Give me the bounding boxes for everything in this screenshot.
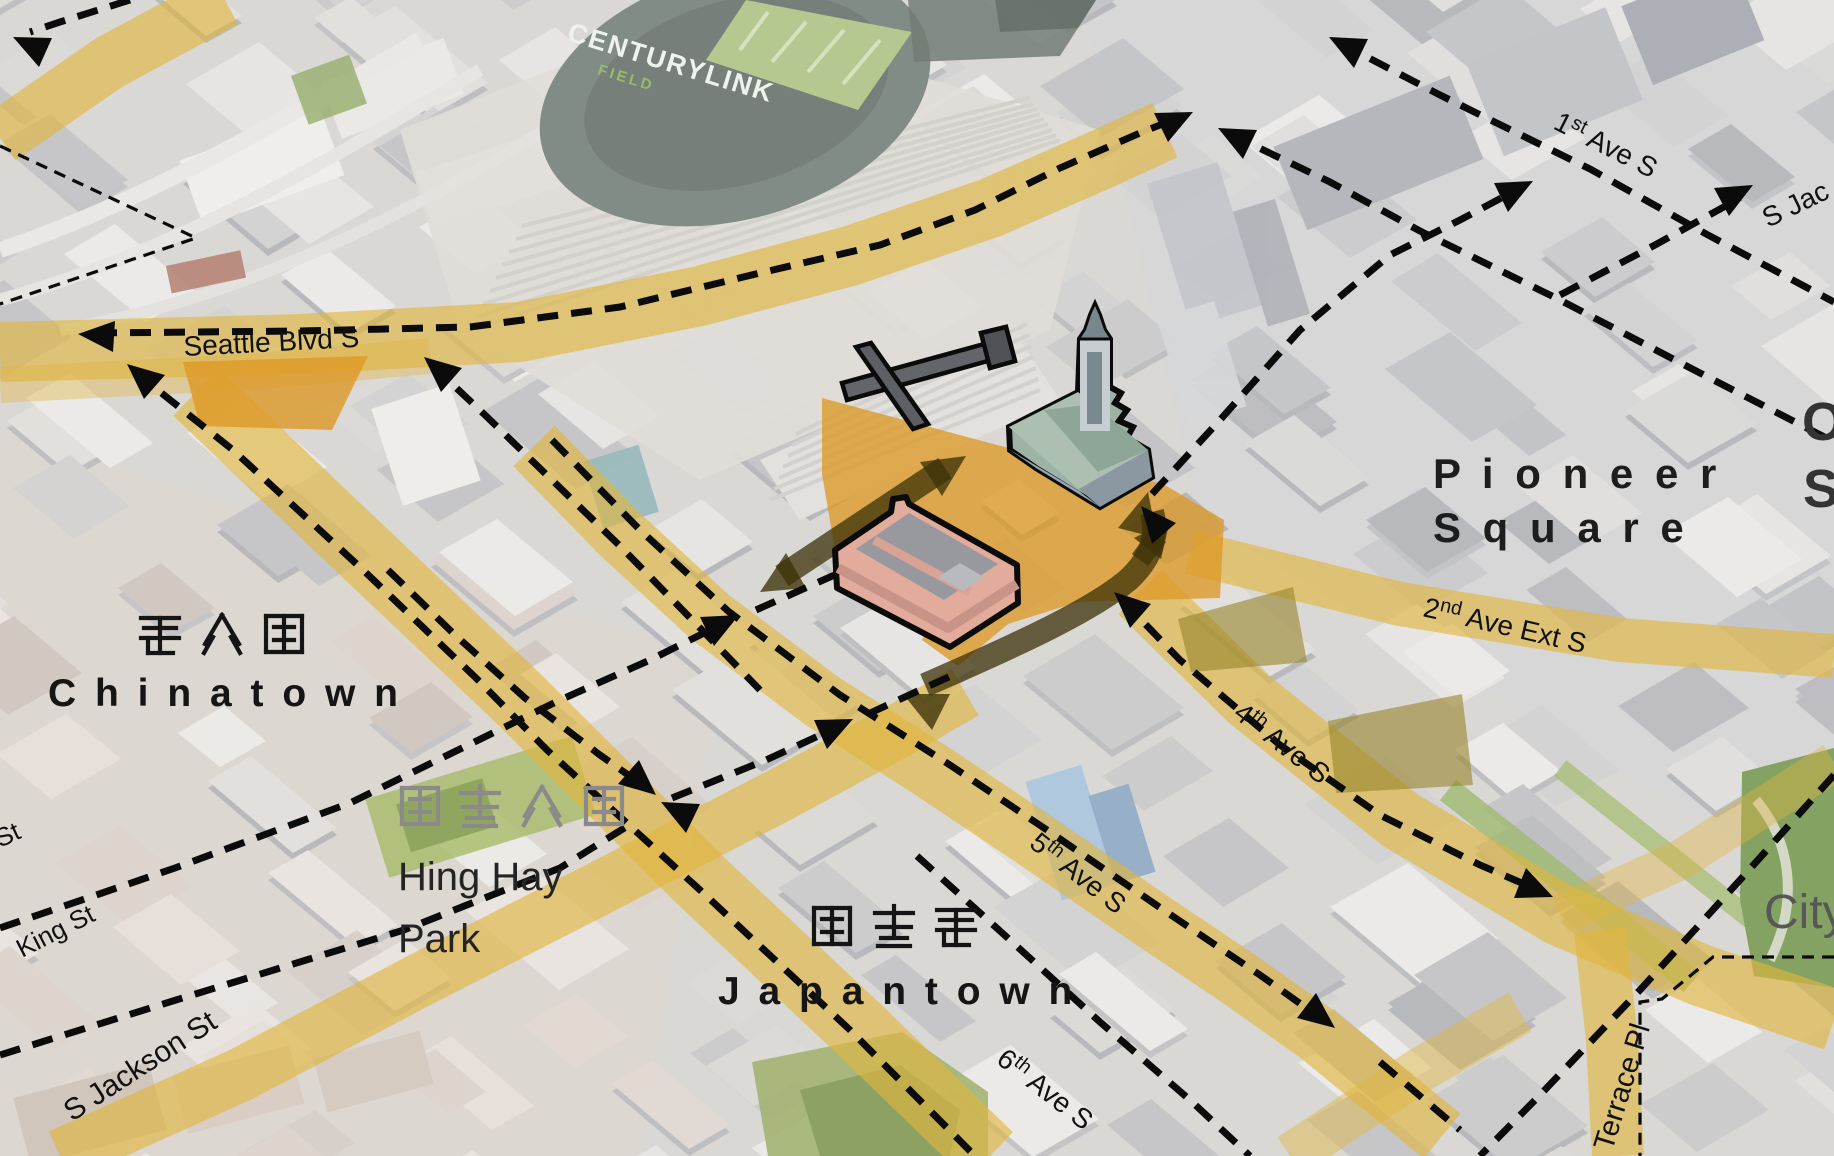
svg-text:J a p a n t o w n: J a p a n t o w n [718, 970, 1076, 1013]
svg-text:Hing Hay: Hing Hay [398, 855, 563, 899]
svg-text:S: S [1803, 459, 1834, 519]
svg-text:O: O [1802, 392, 1834, 452]
svg-text:P i o n e e r: P i o n e e r [1433, 450, 1721, 497]
svg-text:S q u a r e: S q u a r e [1433, 504, 1689, 551]
svg-text:City: City [1764, 886, 1834, 939]
svg-text:Park: Park [398, 917, 481, 961]
svg-text:C h i n a t o w n: C h i n a t o w n [48, 672, 402, 715]
